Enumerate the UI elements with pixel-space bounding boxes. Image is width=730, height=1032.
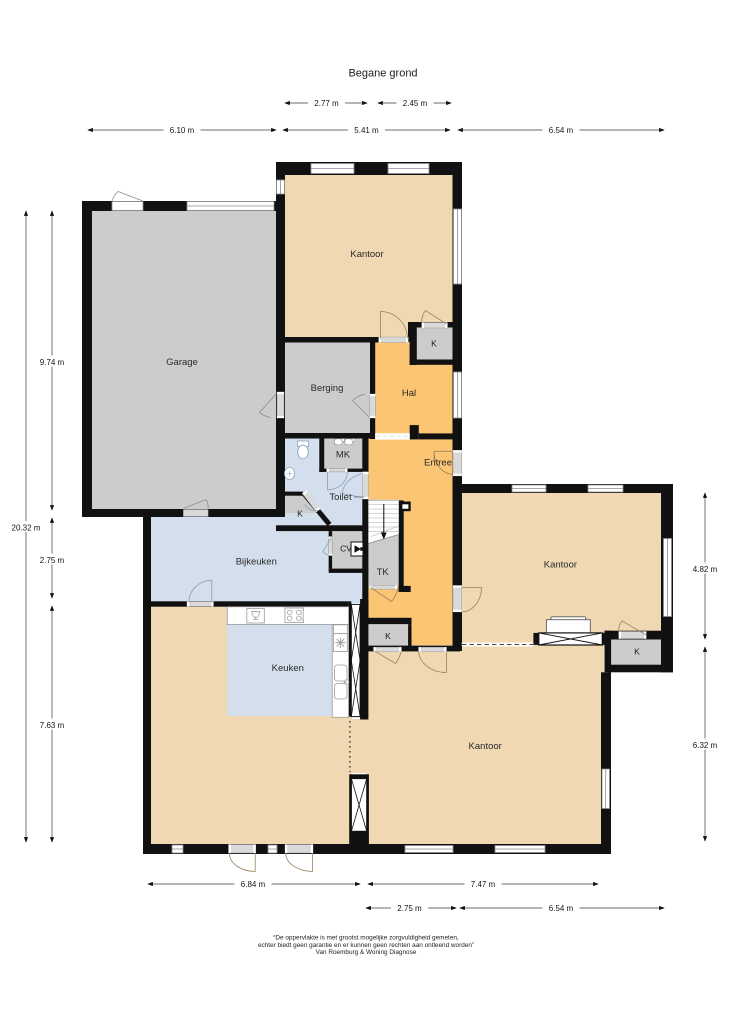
svg-text:echter biedt geen garantie en: echter biedt geen garantie en er kunnen … xyxy=(258,942,474,949)
svg-text:2.45 m: 2.45 m xyxy=(403,99,428,108)
svg-text:2.75 m: 2.75 m xyxy=(40,556,65,565)
svg-text:K: K xyxy=(431,339,437,349)
svg-text:6.32 m: 6.32 m xyxy=(693,741,718,750)
svg-text:2.75 m: 2.75 m xyxy=(397,904,422,913)
svg-text:6.54 m: 6.54 m xyxy=(549,126,574,135)
svg-text:TK: TK xyxy=(377,567,390,578)
svg-text:Toilet: Toilet xyxy=(329,492,352,503)
svg-text:20.32 m: 20.32 m xyxy=(12,523,41,532)
svg-text:6.54 m: 6.54 m xyxy=(549,904,574,913)
svg-text:Begane grond: Begane grond xyxy=(348,68,417,80)
svg-text:5.41 m: 5.41 m xyxy=(354,126,379,135)
svg-text:Kantoor: Kantoor xyxy=(544,559,577,570)
svg-text:7.47 m: 7.47 m xyxy=(471,880,496,889)
svg-text:Garage: Garage xyxy=(166,357,198,368)
svg-text:Keuken: Keuken xyxy=(272,663,304,674)
svg-text:CV: CV xyxy=(340,544,352,554)
svg-text:K: K xyxy=(634,647,640,657)
svg-text:Berging: Berging xyxy=(311,383,344,394)
svg-text:6.84 m: 6.84 m xyxy=(241,880,266,889)
svg-text:Entree: Entree xyxy=(424,458,452,469)
svg-text:Kantoor: Kantoor xyxy=(350,249,383,260)
svg-text:“De oppervlakte is met grootst: “De oppervlakte is met grootst mogelijke… xyxy=(273,935,459,942)
svg-text:Van Roemburg & Woning Diagnose: Van Roemburg & Woning Diagnose xyxy=(316,949,417,956)
svg-text:6.10 m: 6.10 m xyxy=(170,126,195,135)
svg-text:Hal: Hal xyxy=(402,388,416,399)
svg-text:Kantoor: Kantoor xyxy=(469,741,502,752)
svg-text:7.63 m: 7.63 m xyxy=(40,721,65,730)
svg-text:MK: MK xyxy=(336,450,351,461)
svg-text:K: K xyxy=(297,509,303,519)
svg-text:4.82 m: 4.82 m xyxy=(693,565,718,574)
svg-text:2.77 m: 2.77 m xyxy=(314,99,339,108)
svg-text:K: K xyxy=(385,631,391,641)
svg-text:9.74 m: 9.74 m xyxy=(40,358,65,367)
svg-text:Bijkeuken: Bijkeuken xyxy=(236,557,277,568)
